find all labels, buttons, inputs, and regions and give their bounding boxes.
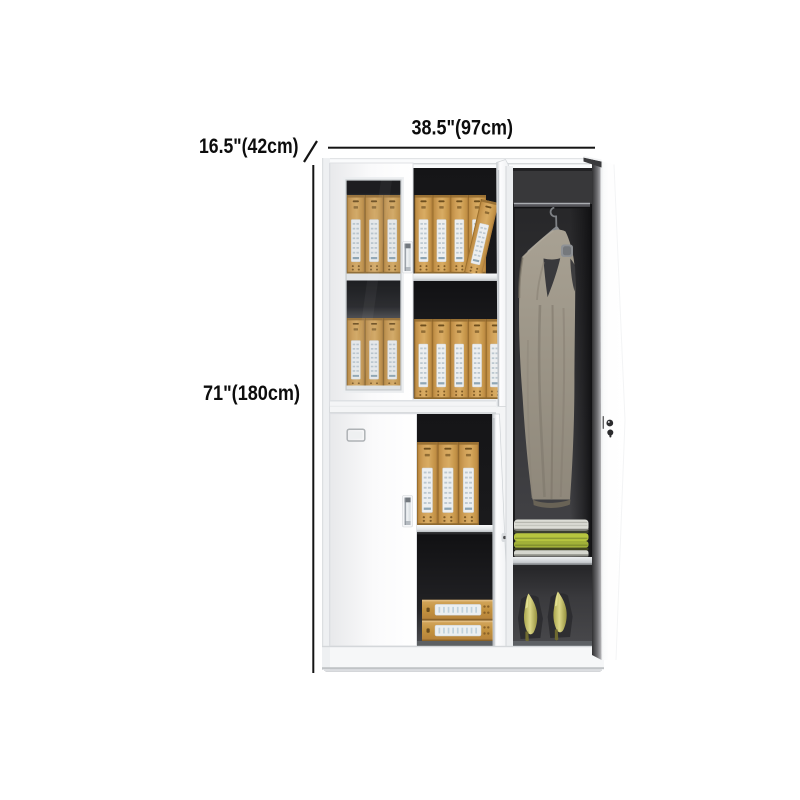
svg-text:16.5"(42cm): 16.5"(42cm) bbox=[199, 135, 299, 158]
svg-text:38.5"(97cm): 38.5"(97cm) bbox=[412, 117, 514, 140]
svg-text:71"(180cm): 71"(180cm) bbox=[203, 382, 300, 405]
